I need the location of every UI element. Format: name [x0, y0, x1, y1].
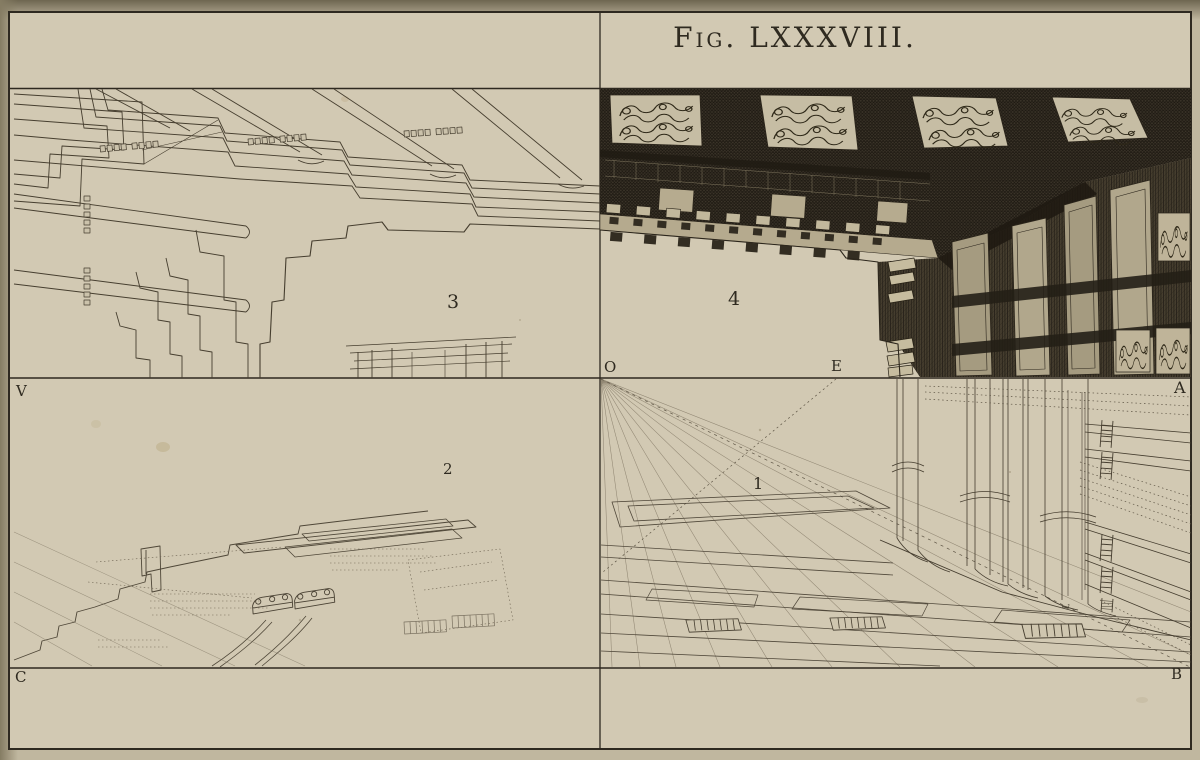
- point-label-a: A: [1173, 378, 1186, 397]
- engraved-plate-page: Fig. LXXXVIII. 3 4 2 1 O E A V C B L: [0, 0, 1200, 760]
- point-label-o: O: [604, 358, 616, 376]
- figure-title: Fig. LXXXVIII.: [673, 21, 917, 54]
- quadrant-2-number: 2: [443, 460, 453, 478]
- engraving-plate: Fig. LXXXVIII. 3 4 2 1 O E A V C B L: [0, 0, 1200, 760]
- point-label-v: V: [15, 382, 28, 400]
- quadrant-4-number: 4: [728, 288, 740, 310]
- quadrant-1-number: 1: [753, 474, 763, 493]
- point-label-b: B: [1171, 665, 1182, 683]
- point-label-e: E: [831, 357, 842, 375]
- quadrant-3-number: 3: [447, 291, 459, 313]
- point-label-c: C: [15, 668, 26, 686]
